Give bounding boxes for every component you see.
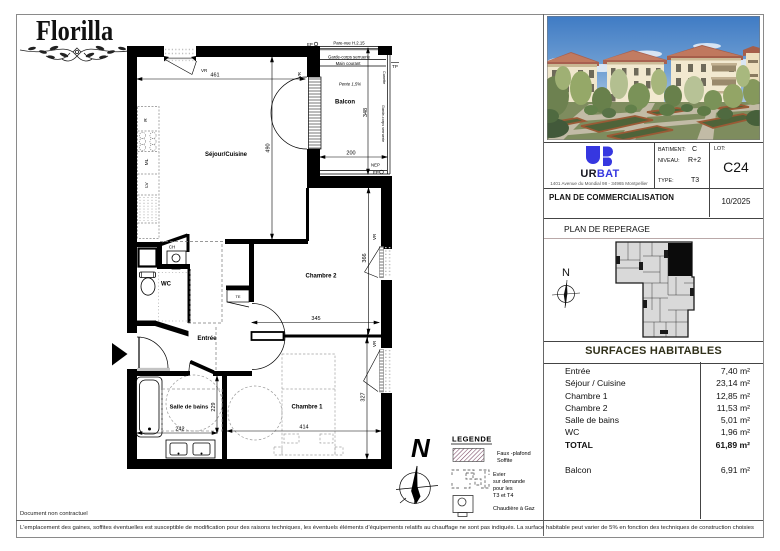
- svg-text:Séjour/Cuisine: Séjour/Cuisine: [205, 152, 248, 158]
- svg-text:Garde-corps serruerie: Garde-corps serruerie: [381, 105, 385, 142]
- svg-text:VR: VR: [372, 233, 377, 240]
- svg-text:ML: ML: [144, 158, 150, 165]
- svg-text:Chaudière à Gaz: Chaudière à Gaz: [493, 506, 535, 512]
- svg-text:Chambre 2: Chambre 2: [305, 274, 337, 280]
- svg-text:Faux -plafond: Faux -plafond: [497, 451, 531, 457]
- svg-text:VR: VR: [372, 340, 377, 347]
- svg-text:414: 414: [299, 425, 308, 431]
- svg-text:Evier: Evier: [493, 472, 506, 478]
- svg-text:490: 490: [266, 143, 272, 152]
- svg-text:345: 345: [311, 316, 320, 322]
- svg-text:Pare-vue H.2.15: Pare-vue H.2.15: [333, 41, 365, 46]
- svg-text:229: 229: [211, 402, 217, 411]
- svg-text:NEP: NEP: [371, 163, 380, 168]
- svg-text:LV: LV: [144, 181, 150, 187]
- svg-text:348: 348: [363, 108, 369, 117]
- svg-text:461: 461: [210, 73, 219, 79]
- svg-text:TP: TP: [392, 64, 398, 69]
- svg-text:Soffite: Soffite: [497, 458, 513, 464]
- svg-text:TE: TE: [235, 294, 240, 299]
- svg-text:Garde-corps serruerie: Garde-corps serruerie: [328, 55, 371, 60]
- svg-text:Pente 1,5%: Pente 1,5%: [339, 82, 361, 87]
- svg-text:LEGENDE: LEGENDE: [452, 435, 492, 444]
- svg-text:Entrée: Entrée: [197, 335, 217, 342]
- svg-text:200: 200: [346, 151, 355, 157]
- svg-text:T3 et T4: T3 et T4: [493, 493, 513, 499]
- svg-text:CH: CH: [169, 245, 176, 250]
- svg-text:WC: WC: [161, 282, 172, 288]
- svg-text:366: 366: [362, 253, 368, 262]
- svg-text:N: N: [411, 433, 431, 463]
- svg-text:VR: VR: [201, 68, 208, 73]
- svg-text:Salle de bains: Salle de bains: [170, 405, 209, 411]
- svg-text:VR: VR: [297, 71, 302, 78]
- svg-text:R: R: [143, 118, 149, 122]
- svg-text:327: 327: [361, 392, 367, 401]
- svg-text:EP: EP: [307, 42, 313, 47]
- svg-text:Cunette: Cunette: [382, 71, 386, 84]
- svg-text:Balcon: Balcon: [335, 100, 355, 106]
- svg-text:EP: EP: [373, 170, 379, 175]
- svg-text:Main courant: Main courant: [336, 61, 362, 66]
- svg-text:sur demande: sur demande: [493, 479, 525, 485]
- svg-text:pour les: pour les: [493, 486, 513, 492]
- svg-text:Chambre 1: Chambre 1: [291, 405, 323, 411]
- svg-text:242: 242: [175, 427, 184, 433]
